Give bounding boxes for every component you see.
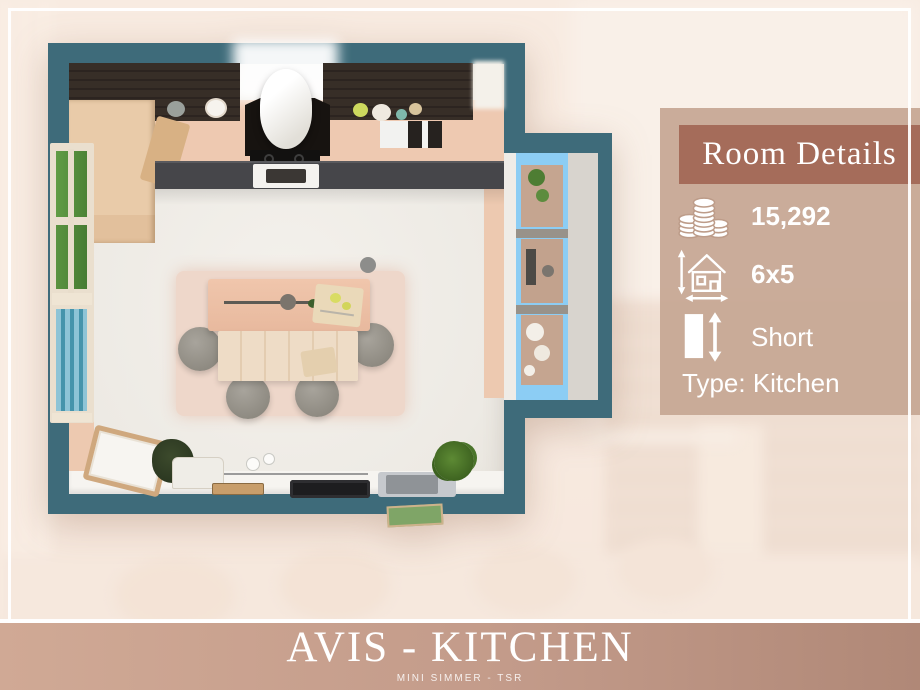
screenshot-root: Room Details 15,292: [0, 0, 920, 690]
creator-credit: MINI SIMMER - TSR: [0, 673, 920, 684]
white-frame-border: [8, 8, 911, 623]
room-title: AVIS - KITCHEN: [0, 624, 920, 672]
title-bar: AVIS - KITCHEN MINI SIMMER - TSR: [0, 623, 920, 690]
